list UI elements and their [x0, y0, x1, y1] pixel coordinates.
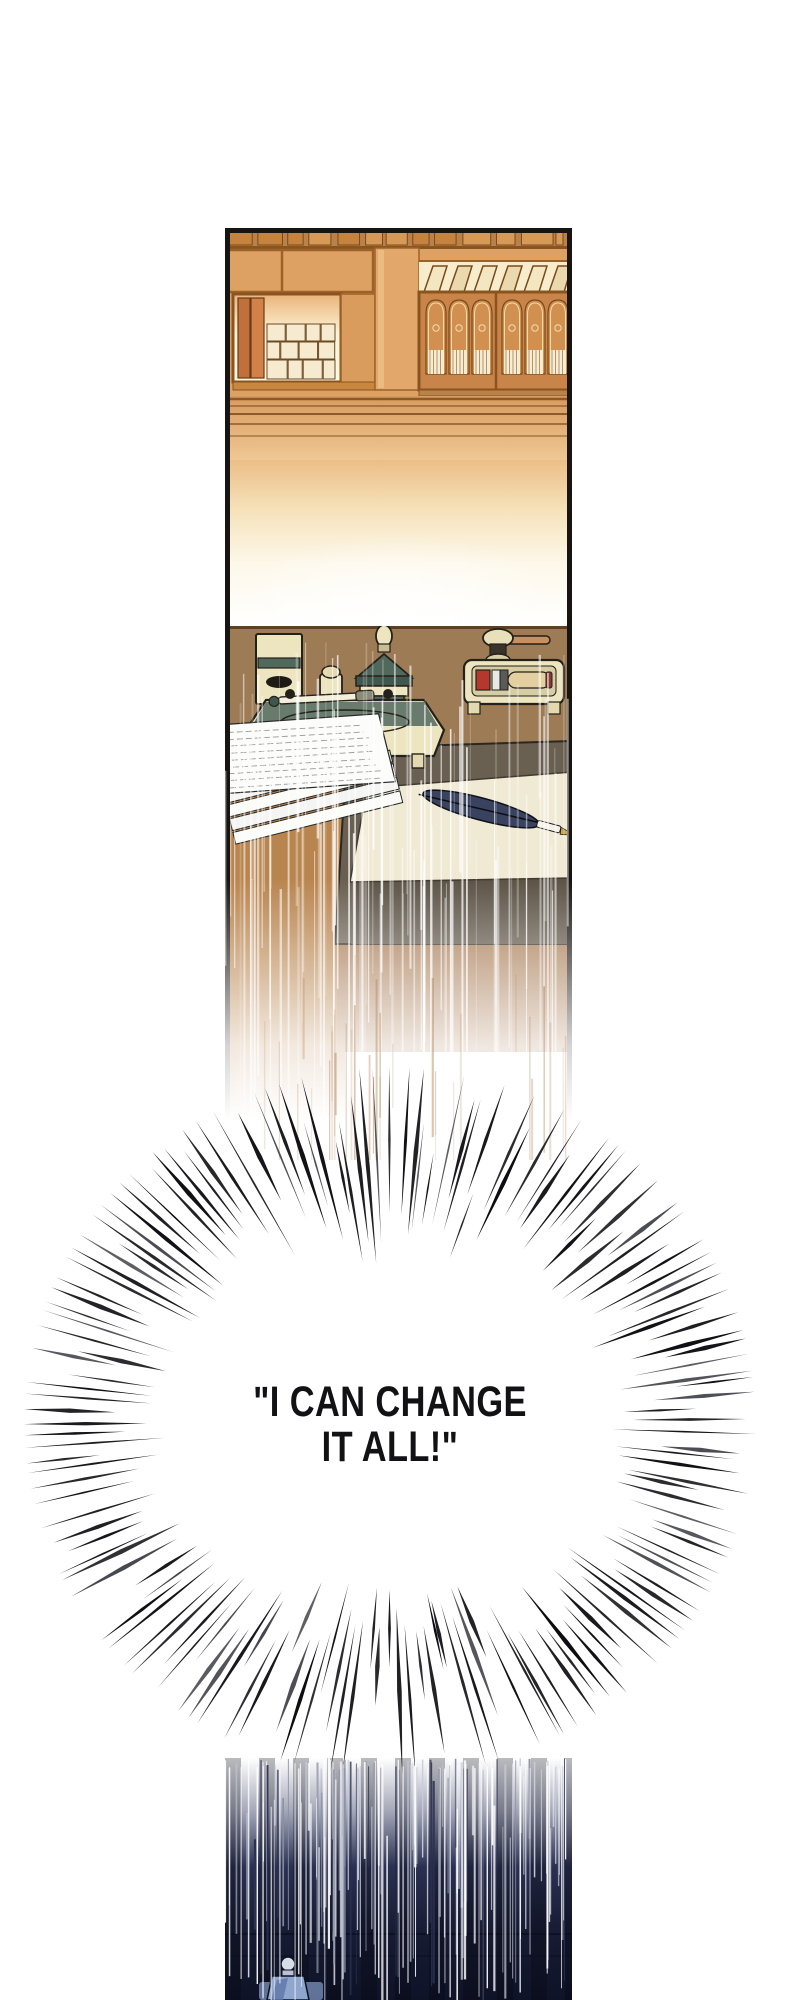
dialogue-line-1: "I CAN CHANGE — [154, 1380, 626, 1425]
dialogue-text: "I CAN CHANGE IT ALL!" — [154, 1380, 626, 1470]
bookshelf-illustration — [225, 228, 572, 462]
stacked-cream-books — [267, 324, 335, 379]
webtoon-page: "I CAN CHANGE IT ALL!" — [0, 0, 800, 2000]
dialogue-line-2: IT ALL!" — [154, 1425, 626, 1470]
rain-streaks — [225, 1758, 572, 2000]
lamp-glow — [225, 460, 572, 628]
top-shelf-books — [229, 231, 563, 245]
panel-night-scene — [225, 1758, 572, 2000]
panel-border-top — [225, 228, 572, 233]
